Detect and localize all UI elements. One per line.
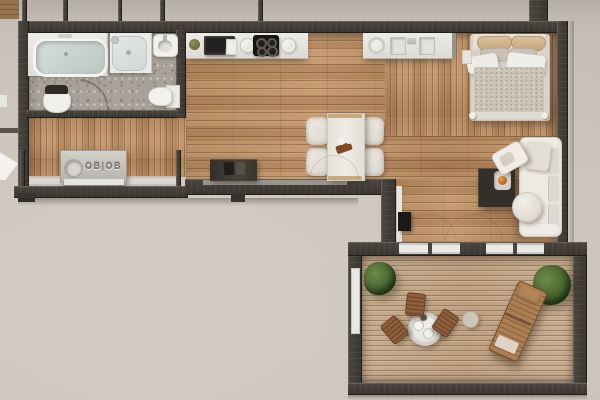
shower-head xyxy=(111,36,119,44)
exterior-shadow-hallway-wall xyxy=(18,198,358,206)
sliding-door-divider xyxy=(513,243,517,254)
exterior-white-fragment xyxy=(0,95,7,107)
lounger-fold-line xyxy=(505,312,532,326)
bathroom-door-leaf xyxy=(78,78,80,110)
bed-footboard xyxy=(472,112,546,119)
folding-chair xyxy=(405,292,426,317)
sink-basin-left xyxy=(390,37,406,55)
bathtub-drain xyxy=(64,52,68,56)
top-exterior-strip xyxy=(0,0,600,21)
wall-exterior-stub xyxy=(0,128,18,133)
facade-post xyxy=(63,0,68,21)
bed-post-knob xyxy=(541,112,548,119)
cup xyxy=(413,320,424,331)
wall-balcony-bottom xyxy=(348,383,587,395)
bidet xyxy=(42,85,72,112)
centerpiece-flower xyxy=(345,136,353,144)
cup xyxy=(423,328,434,339)
plate xyxy=(281,38,296,53)
toilet-bowl xyxy=(148,87,172,106)
bathtub-faucet xyxy=(58,34,72,38)
wood-shelf-top-left xyxy=(0,0,19,19)
sofa-armrest xyxy=(521,224,558,234)
exterior-shadow-right-wall xyxy=(568,21,574,256)
window-frame-post xyxy=(176,150,181,186)
nightstand xyxy=(462,50,472,64)
window-frame-post xyxy=(20,150,25,186)
bathtub xyxy=(33,38,108,77)
toilet xyxy=(148,85,178,106)
dining-chair xyxy=(306,117,330,146)
utility-unit-sill xyxy=(64,179,124,185)
chaise-pillow xyxy=(498,151,516,168)
burner xyxy=(257,47,267,57)
bidet-lid xyxy=(45,85,68,94)
sideboard-book xyxy=(236,162,246,175)
wall-balcony-right xyxy=(573,256,587,395)
washer-porthole xyxy=(64,159,83,178)
bed-blanket xyxy=(474,67,544,114)
side-table-round xyxy=(462,311,479,328)
facade-post xyxy=(118,0,122,21)
sliding-door-divider xyxy=(428,243,432,254)
bathroom-door-swing-arc xyxy=(78,77,111,110)
floor-plan-render: OB|OB xyxy=(0,0,600,400)
wall-notch xyxy=(231,194,245,202)
kitchen-plant-pot xyxy=(189,39,200,50)
cooktop xyxy=(253,35,279,56)
shower-drain xyxy=(126,50,131,55)
sink-faucet xyxy=(407,38,416,43)
sink-basin-right xyxy=(419,37,435,55)
burner xyxy=(267,46,278,57)
bowl-fruit xyxy=(498,176,507,185)
lounger-towel xyxy=(494,334,519,354)
bed-post-knob xyxy=(469,112,476,119)
counter-end-panel xyxy=(452,33,456,58)
balcony-side-door-panel xyxy=(351,268,360,334)
exterior-shadow-balcony xyxy=(348,395,587,400)
wall-balcony-door xyxy=(348,242,587,256)
centerpiece-flower xyxy=(338,138,345,145)
exterior-white-lamp xyxy=(0,150,18,180)
plate xyxy=(368,37,385,54)
milk-carton xyxy=(226,39,238,55)
sofa-throw-blanket xyxy=(524,141,551,172)
wall-hallway-bottom xyxy=(14,186,188,198)
utility-unit-embossed-text: OB|OB xyxy=(85,162,122,171)
sofa-back-cushion xyxy=(548,176,559,202)
washbasin-bowl xyxy=(158,40,172,52)
facade-post xyxy=(160,0,165,21)
facade-post-thick xyxy=(529,0,548,22)
wall-top xyxy=(18,21,568,33)
facade-post xyxy=(22,0,27,21)
table-end-trim xyxy=(328,114,362,118)
facade-post xyxy=(258,0,263,21)
sideboard-book xyxy=(224,162,235,176)
round-pouf xyxy=(512,192,542,222)
washbasin-faucet xyxy=(163,35,167,40)
washbasin xyxy=(153,34,178,57)
